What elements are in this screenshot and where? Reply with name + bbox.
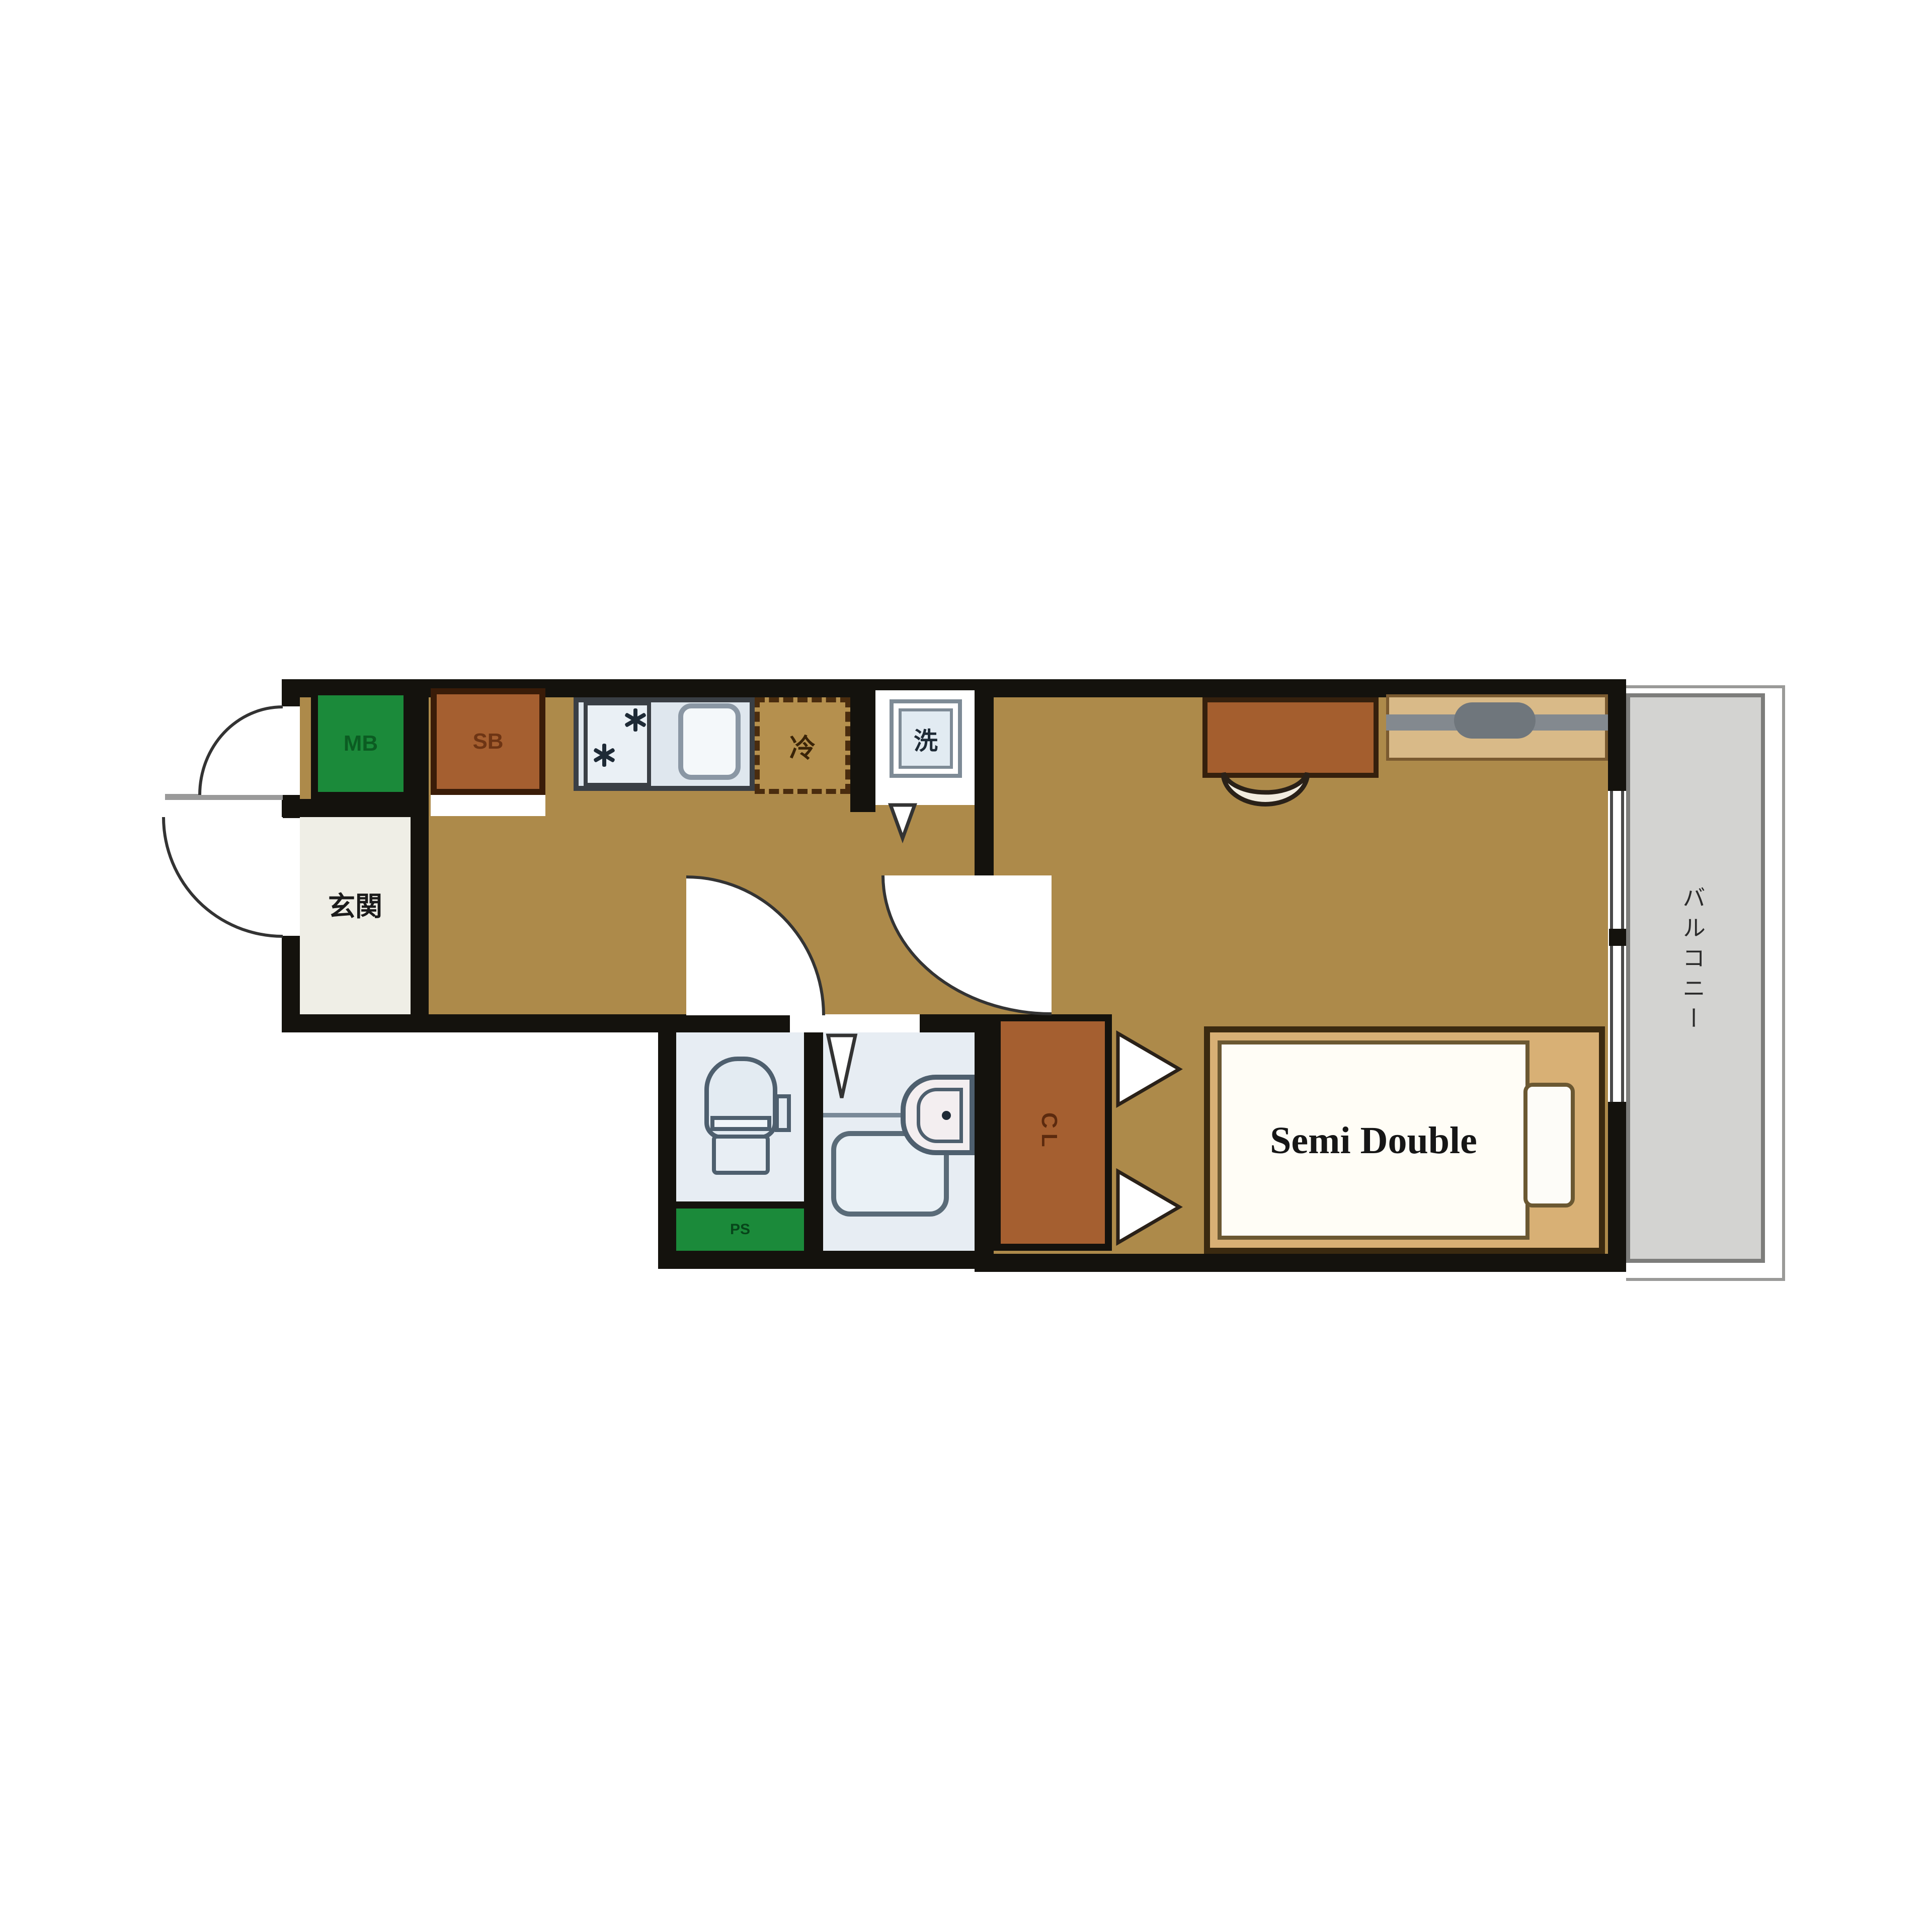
- washer-folding-door-icon: [891, 805, 915, 838]
- closet-folding-door-icon: [1118, 1171, 1179, 1243]
- closet-folding-door-icon: [1118, 1033, 1179, 1105]
- page: { "title": "1K apartment floor plan", "l…: [0, 0, 1932, 1932]
- chair-arc-icon: [1224, 773, 1307, 804]
- plan-marks-overlay: [0, 0, 1932, 1932]
- floor-plan: バルコニー MB SB 冷 洗 玄関 PS: [0, 0, 1932, 1932]
- bath-folding-door-icon: [828, 1035, 855, 1098]
